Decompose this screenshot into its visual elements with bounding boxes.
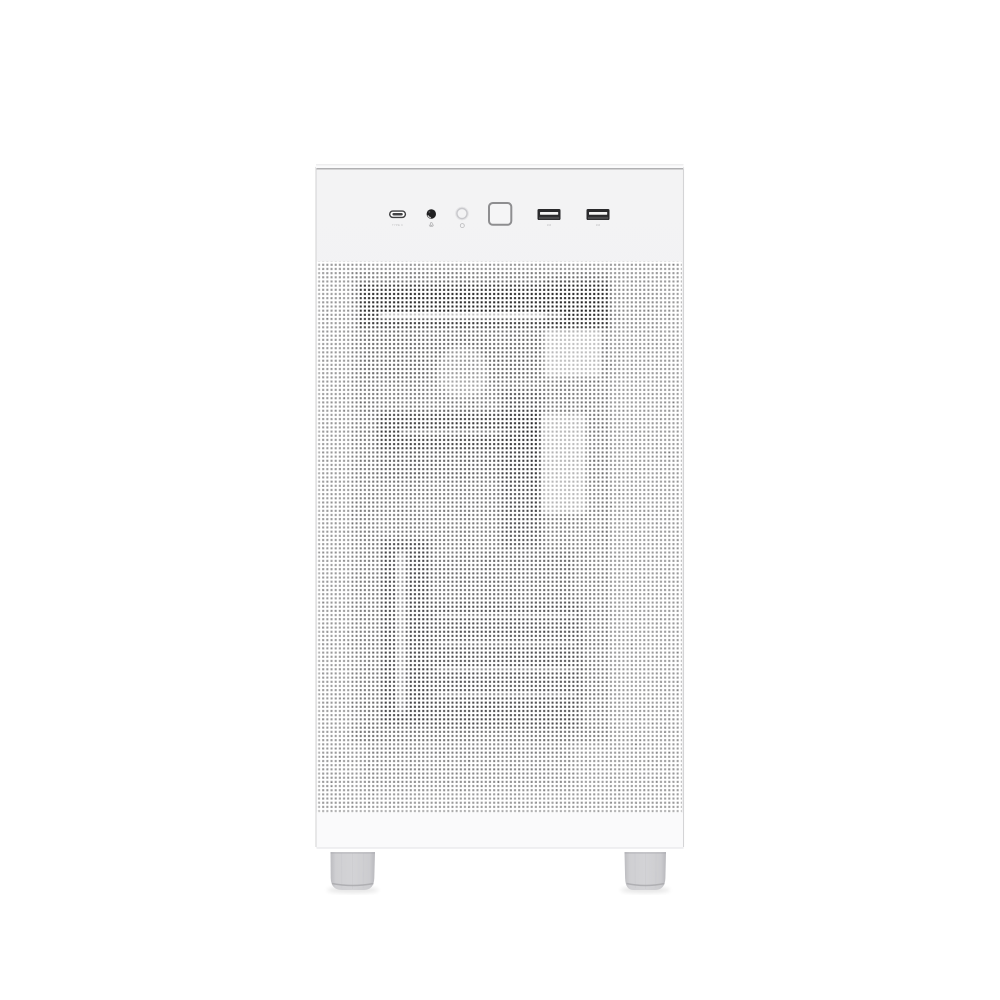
svg-text:3.0: 3.0 — [596, 223, 601, 227]
svg-text:3.0: 3.0 — [547, 223, 552, 227]
svg-text:TYPE C: TYPE C — [392, 223, 403, 227]
